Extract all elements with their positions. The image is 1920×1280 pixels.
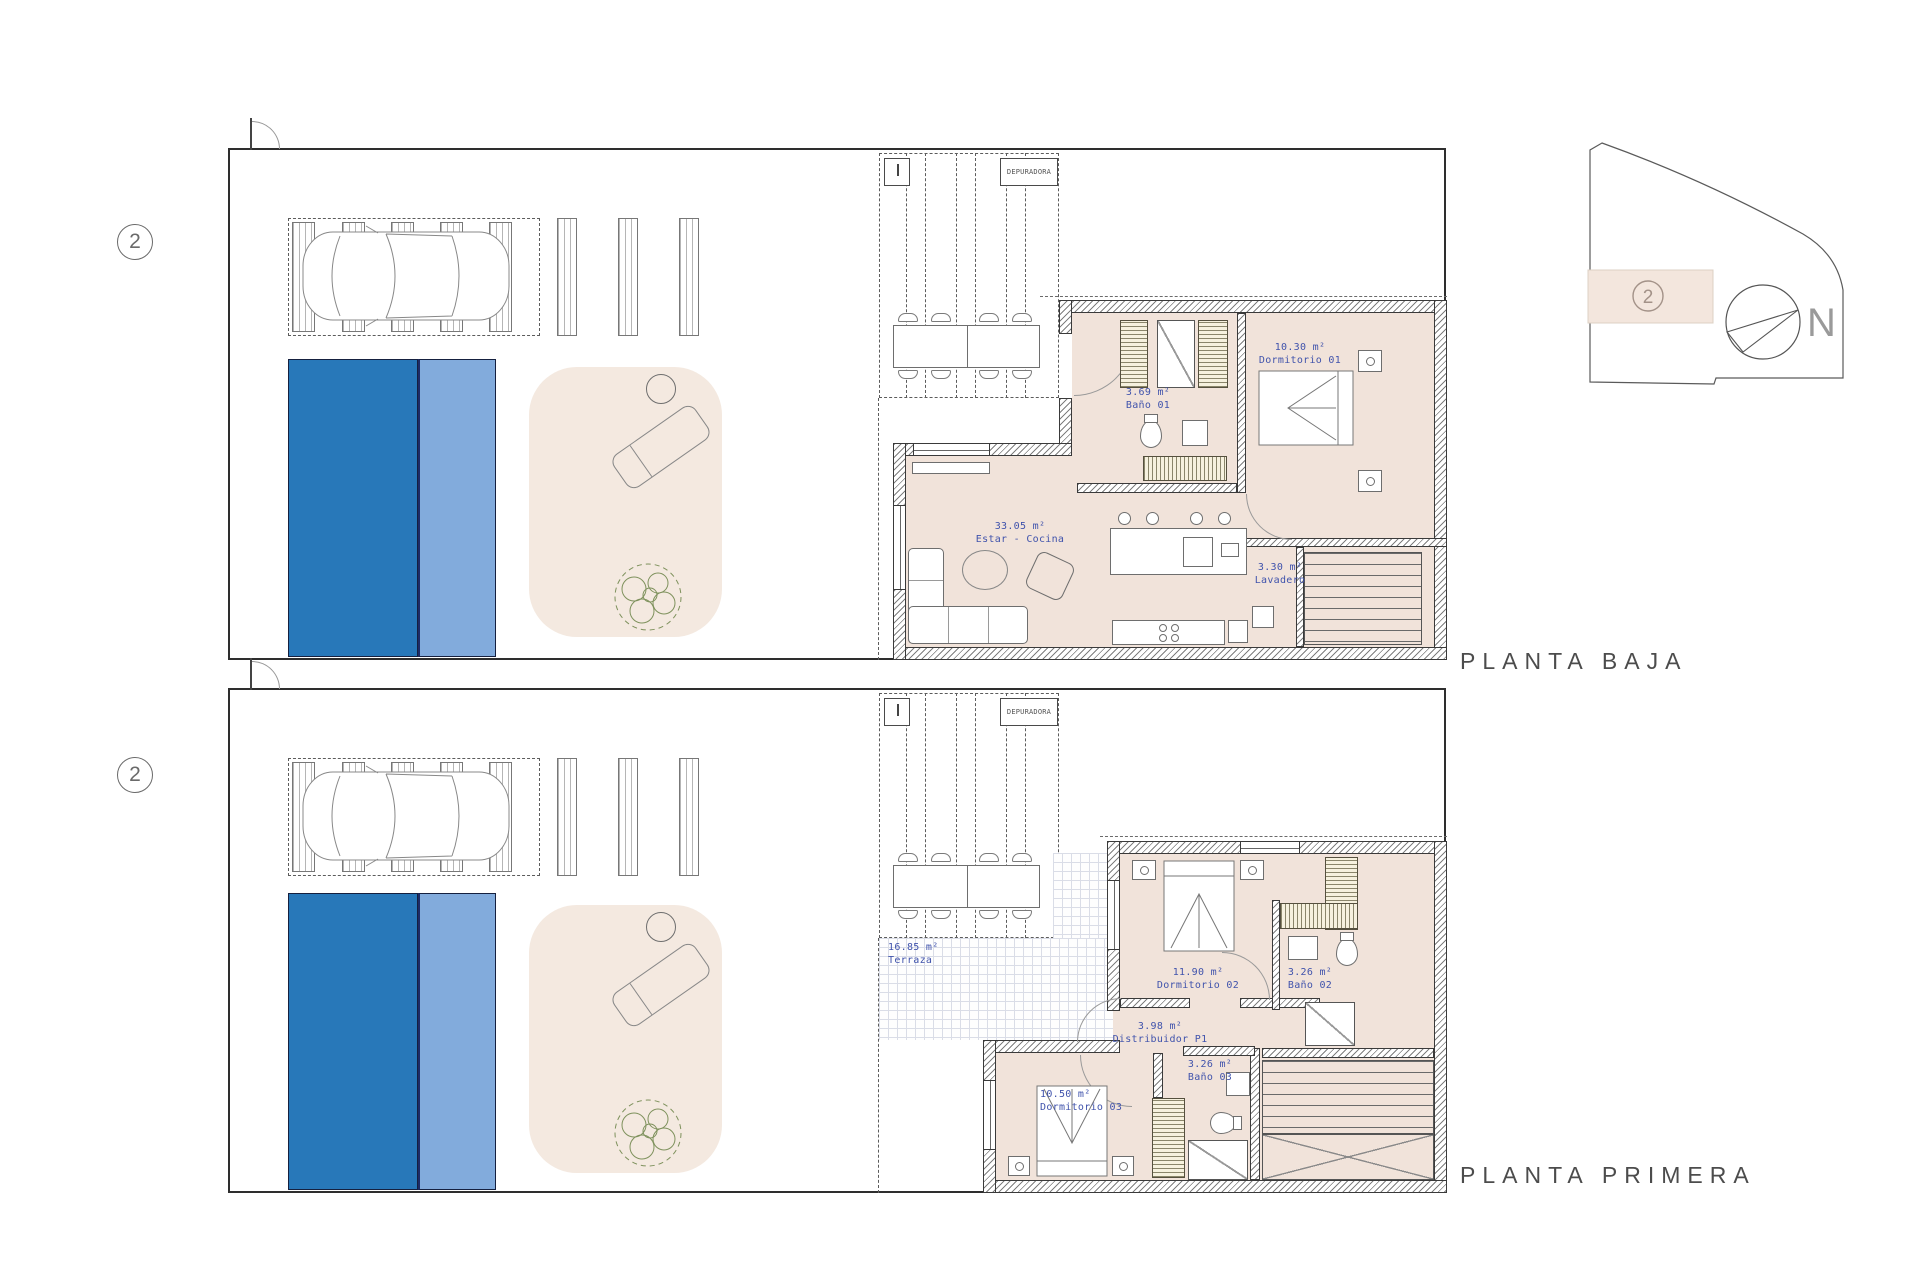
stool xyxy=(1218,512,1231,525)
unit-badge: 2 xyxy=(117,224,153,260)
chair xyxy=(1012,313,1032,322)
bed xyxy=(1163,860,1235,952)
wall xyxy=(1183,1046,1255,1056)
pergola-beam xyxy=(618,758,638,876)
shower xyxy=(1188,1140,1248,1180)
toilet xyxy=(1336,938,1358,966)
pergola-beam xyxy=(557,758,577,876)
wall xyxy=(1237,313,1246,493)
chair xyxy=(1012,853,1032,862)
stair-landing xyxy=(1262,1134,1434,1180)
window xyxy=(893,505,906,590)
room-label-bano-02: 3.26 m²Baño 02 xyxy=(1230,966,1390,992)
window xyxy=(983,1080,996,1150)
towel-radiator xyxy=(1280,903,1358,929)
pool-shallow xyxy=(418,359,496,657)
nightstand xyxy=(1112,1156,1134,1176)
pergola-beam xyxy=(618,218,638,336)
room-label-distribuidor-p1: 3.98 m²Distribuidor P1 xyxy=(1080,1020,1240,1046)
window xyxy=(913,443,990,456)
north-label: N xyxy=(1807,301,1836,345)
coffee-table xyxy=(962,550,1008,590)
pergola-beam xyxy=(679,218,699,336)
site-outline: 2 N xyxy=(1585,138,1855,388)
chair xyxy=(898,313,918,322)
pool-deep xyxy=(288,893,418,1190)
dining-table xyxy=(893,325,1040,368)
gate-swing-arc xyxy=(252,661,280,689)
window xyxy=(1107,880,1120,950)
bed xyxy=(1258,370,1354,446)
side-table xyxy=(646,374,676,404)
dining-table xyxy=(893,865,1040,908)
stool xyxy=(1190,512,1203,525)
chair xyxy=(979,853,999,862)
room-label-estar-cocina: 33.05 m²Estar - Cocina xyxy=(940,520,1100,546)
pergola-beam xyxy=(679,758,699,876)
wall xyxy=(983,1180,1447,1193)
floorplan-sheet: 2 DEPURADORA xyxy=(0,0,1920,1280)
wall xyxy=(1077,483,1237,493)
side-table xyxy=(646,912,676,942)
plant-icon xyxy=(606,555,690,639)
towel-radiator xyxy=(1143,456,1227,481)
chair xyxy=(931,853,951,862)
car-icon xyxy=(300,224,512,328)
wall xyxy=(1237,538,1447,547)
roof-overhang-dashed xyxy=(1100,836,1447,837)
pool-shallow xyxy=(418,893,496,1190)
pool-equipment-symbol xyxy=(884,698,910,726)
window xyxy=(1240,841,1300,854)
washer xyxy=(1252,606,1274,628)
wall xyxy=(1059,300,1072,334)
closet xyxy=(1120,320,1148,388)
room-label-dormitorio-03: 10.50 m²Dormitorio 03 xyxy=(1040,1088,1160,1114)
room-label-bano-01: 3.69 m²Baño 01 xyxy=(1068,386,1228,412)
shower xyxy=(1305,1002,1355,1046)
room-label-terraza: 16.85 m²Terraza xyxy=(888,941,998,967)
depuradora-box: DEPURADORA xyxy=(1000,698,1058,726)
sink xyxy=(1288,936,1318,960)
fridge xyxy=(1228,620,1248,643)
plan-title: PLANTA PRIMERA xyxy=(1460,1162,1756,1189)
site-unit-badge: 2 xyxy=(1643,287,1654,308)
room-label-dormitorio-01: 10.30 m²Dormitorio 01 xyxy=(1220,341,1380,367)
wall xyxy=(1059,300,1447,313)
shower xyxy=(1157,320,1195,388)
stool xyxy=(1118,512,1131,525)
chair xyxy=(898,853,918,862)
pergola-beam xyxy=(557,218,577,336)
wall xyxy=(1434,841,1447,1193)
room-label-lavadero: 3.30 m²Lavadero xyxy=(1200,561,1360,587)
plan-title: PLANTA BAJA xyxy=(1460,648,1687,675)
wall xyxy=(893,647,1447,660)
plant-icon xyxy=(606,1091,690,1175)
car-icon xyxy=(300,764,512,868)
wall xyxy=(1120,998,1190,1008)
plot-divider-dashed xyxy=(878,938,879,1193)
chair xyxy=(931,313,951,322)
nightstand xyxy=(1358,470,1382,492)
nightstand xyxy=(1008,1156,1030,1176)
depuradora-box: DEPURADORA xyxy=(1000,158,1058,186)
roof-overhang-dashed xyxy=(1040,296,1447,297)
room-label-bano-03: 3.26 m²Baño 03 xyxy=(1130,1058,1290,1084)
toilet xyxy=(1140,420,1162,448)
sink xyxy=(1182,420,1208,446)
chair xyxy=(979,313,999,322)
nightstand xyxy=(1240,860,1264,880)
compass-icon xyxy=(1726,285,1800,359)
wall xyxy=(1434,300,1447,660)
wall xyxy=(1262,1048,1434,1058)
wall xyxy=(1272,900,1280,1010)
pool-equipment-symbol xyxy=(884,158,910,186)
gate-swing-arc xyxy=(252,121,280,149)
unit-badge: 2 xyxy=(117,757,153,793)
sofa xyxy=(908,606,1028,644)
plot-divider-dashed xyxy=(878,398,879,660)
nightstand xyxy=(1132,860,1156,880)
kitchen-counter xyxy=(1112,620,1225,645)
tv-cabinet xyxy=(912,462,990,474)
stool xyxy=(1146,512,1159,525)
pool-deep xyxy=(288,359,418,657)
